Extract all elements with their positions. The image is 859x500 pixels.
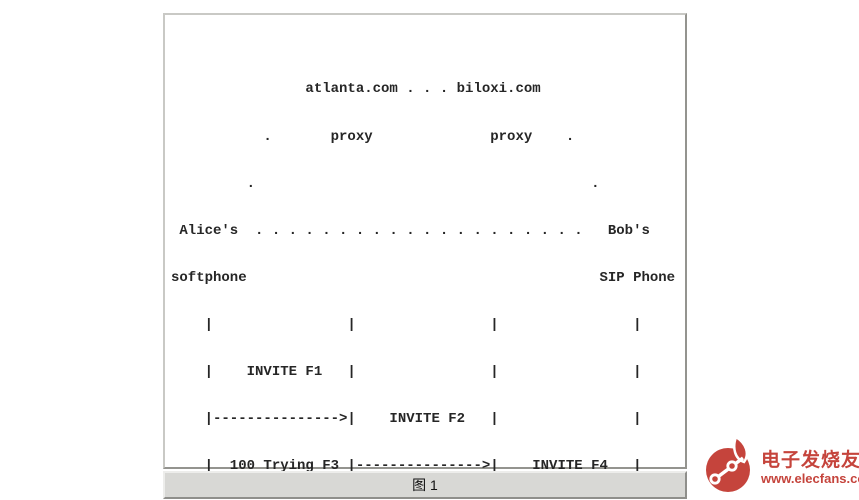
ascii-line: Alice's . . . . . . . . . . . . . . . . … <box>171 224 685 240</box>
ascii-line: | INVITE F1 | | | <box>171 365 685 381</box>
page: atlanta.com . . . biloxi.com . proxy pro… <box>0 0 859 500</box>
watermark-url: www.elecfans.com <box>761 472 859 486</box>
sip-call-flow-figure: atlanta.com . . . biloxi.com . proxy pro… <box>163 13 687 469</box>
watermark-brand: 电子发烧友 <box>761 450 859 471</box>
figure-caption: 图 1 <box>412 475 438 495</box>
watermark: 电子发烧友 www.elecfans.com <box>702 436 859 499</box>
ascii-line: | | | | <box>171 318 685 334</box>
sip-flow-ascii-diagram: atlanta.com . . . biloxi.com . proxy pro… <box>165 15 685 500</box>
ascii-line: atlanta.com . . . biloxi.com <box>171 82 685 98</box>
ascii-line: softphone SIP Phone <box>171 271 685 287</box>
ascii-line: . . <box>171 177 685 193</box>
figure-caption-bar: 图 1 <box>163 471 687 499</box>
ascii-line: |--------------->| INVITE F2 | | <box>171 412 685 428</box>
elecfans-logo-icon <box>702 436 756 499</box>
ascii-line: . proxy proxy . <box>171 130 685 146</box>
